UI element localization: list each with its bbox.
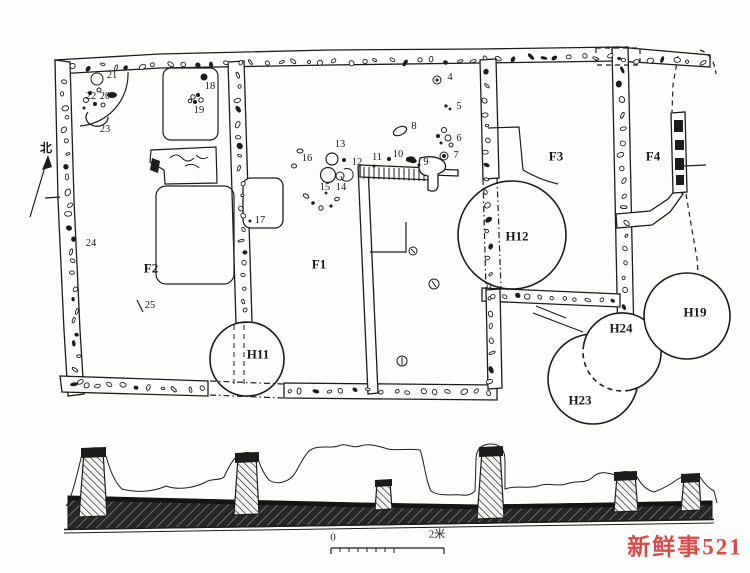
- find-label-11: 11: [372, 153, 382, 164]
- pit-label-H23: H23: [568, 394, 591, 407]
- pit-label-H24: H24: [609, 322, 632, 335]
- room-label-F3: F3: [549, 150, 563, 163]
- find-label-22: 22: [86, 92, 97, 103]
- room-label-F1: F1: [312, 258, 326, 271]
- room-label-F2: F2: [144, 262, 158, 275]
- pit-label-H12: H12: [505, 230, 528, 243]
- find-label-17: 17: [255, 216, 266, 227]
- find-label-9: 9: [423, 158, 428, 169]
- find-label-15: 15: [320, 183, 331, 194]
- find-label-18: 18: [205, 82, 216, 93]
- find-label-25: 25: [145, 301, 156, 312]
- find-label-21: 21: [107, 71, 118, 82]
- labels-layer: 北 0 2米 新鲜事521 F2F1F3F4H11H12H19H24H23456…: [0, 0, 750, 573]
- pit-label-H19: H19: [683, 306, 706, 319]
- north-label: 北: [40, 142, 52, 154]
- figure-canvas: 北 0 2米 新鲜事521 F2F1F3F4H11H12H19H24H23456…: [0, 0, 750, 573]
- find-label-6: 6: [456, 134, 461, 145]
- room-label-F4: F4: [646, 150, 660, 163]
- find-label-12: 12: [352, 158, 363, 169]
- find-label-14: 14: [336, 183, 347, 194]
- find-label-20: 20: [100, 92, 111, 103]
- find-label-24: 24: [86, 239, 97, 250]
- find-label-7: 7: [453, 151, 458, 162]
- find-label-8: 8: [411, 122, 416, 133]
- pit-label-H11: H11: [247, 348, 269, 361]
- scale-zero-label: 0: [330, 533, 336, 544]
- scale-max-label: 2米: [429, 530, 446, 541]
- find-label-10: 10: [393, 150, 404, 161]
- find-label-4: 4: [447, 73, 452, 84]
- find-label-19: 19: [194, 106, 205, 117]
- find-label-16: 16: [302, 154, 313, 165]
- find-label-13: 13: [335, 140, 346, 151]
- watermark: 新鲜事521: [627, 536, 743, 559]
- find-label-23: 23: [100, 125, 111, 136]
- find-label-5: 5: [456, 102, 461, 113]
